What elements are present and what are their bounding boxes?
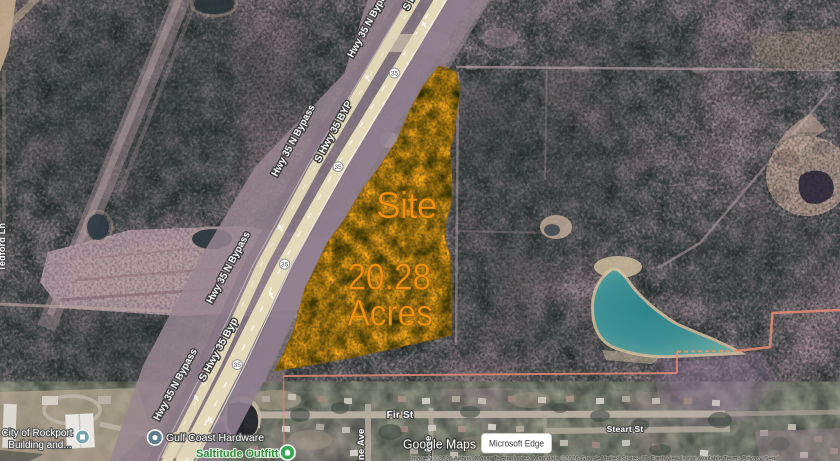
svg-text:35: 35 <box>334 164 342 171</box>
svg-text:Imagery ©2026 Airbus, Maxar Te: Imagery ©2026 Airbus, Maxar Technologies… <box>410 456 601 461</box>
svg-text:City of Rockport: City of Rockport <box>1 428 72 439</box>
svg-text:Building and...: Building and... <box>8 440 71 451</box>
svg-text:Tedford Ln: Tedford Ln <box>0 223 7 271</box>
svg-text:35: 35 <box>391 70 399 77</box>
svg-text:20.28: 20.28 <box>348 256 432 297</box>
svg-text:Microsoft Edge: Microsoft Edge <box>489 438 544 448</box>
svg-text:35: 35 <box>234 362 242 369</box>
svg-text:Google Maps: Google Maps <box>403 438 476 452</box>
svg-text:35: 35 <box>281 262 289 269</box>
svg-text:Gulf Coast Hardware: Gulf Coast Hardware <box>166 432 264 444</box>
svg-text:Pine Ave: Pine Ave <box>356 428 367 461</box>
svg-text:Acres: Acres <box>348 292 434 333</box>
svg-text:Site: Site <box>376 185 438 226</box>
svg-text:Fir St: Fir St <box>387 410 414 421</box>
svg-text:Steart St: Steart St <box>607 424 644 434</box>
svg-text:United States 3D Earth vie: United States 3D Earth view is not avail… <box>602 456 779 461</box>
